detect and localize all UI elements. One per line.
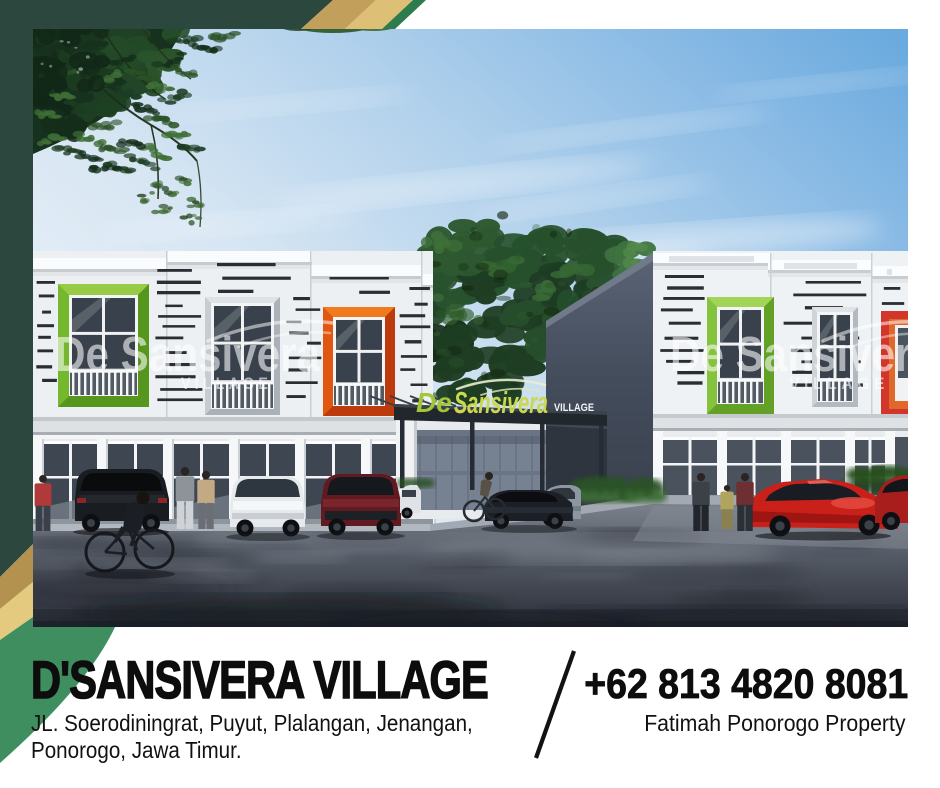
svg-text:De: De [416, 387, 452, 418]
svg-text:VILLAGE: VILLAGE [181, 374, 272, 393]
svg-text:VILLAGE: VILLAGE [554, 402, 594, 414]
svg-text:VILLAGE: VILLAGE [789, 374, 889, 393]
